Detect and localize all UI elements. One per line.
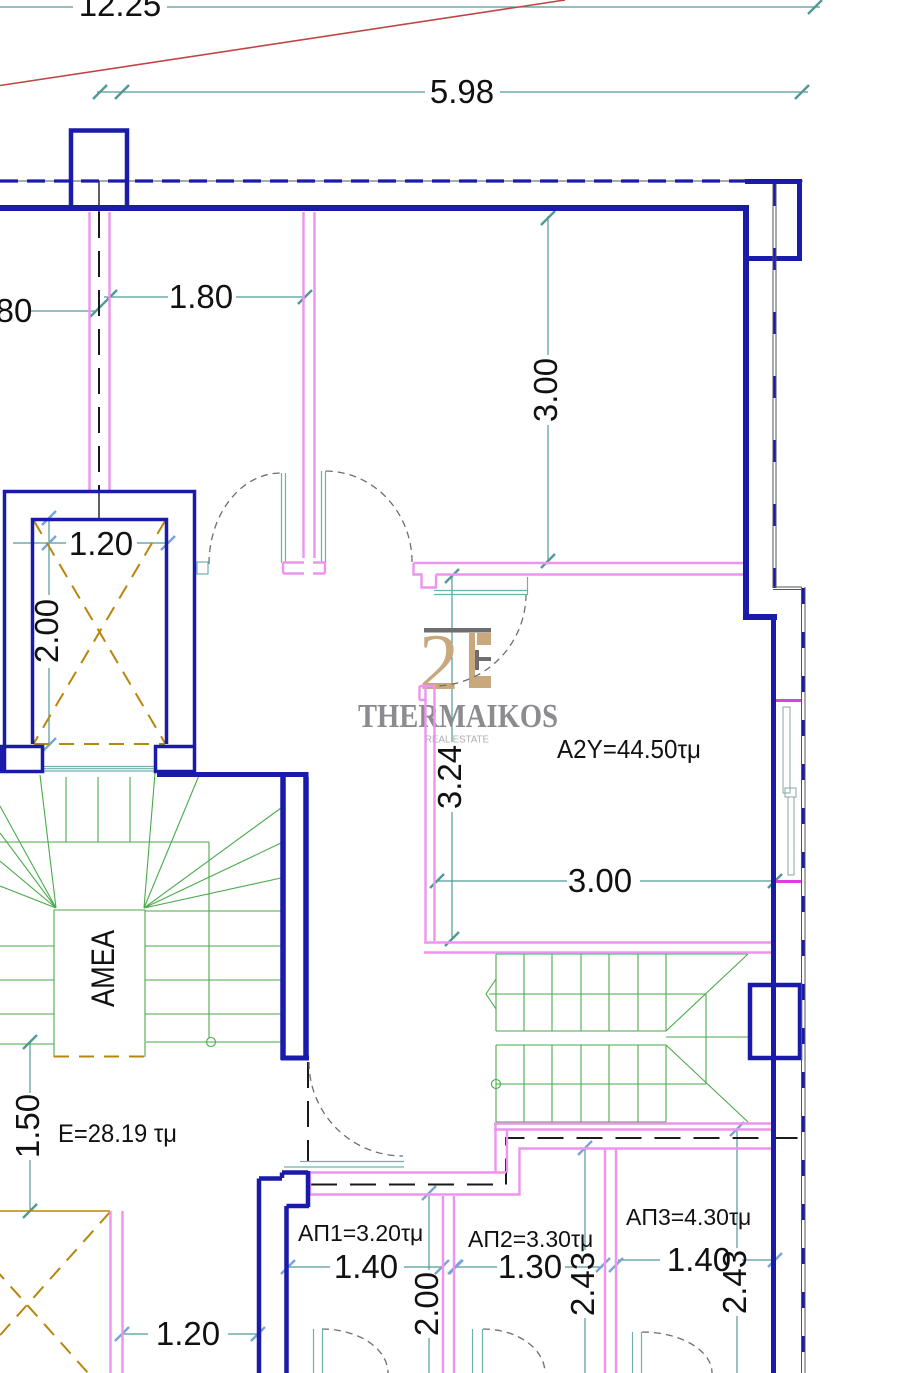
svg-text:ΑΠ1=3.20τμ: ΑΠ1=3.20τμ <box>298 1220 423 1246</box>
svg-text:2.43: 2.43 <box>564 1252 601 1316</box>
svg-text:1.20: 1.20 <box>69 525 133 562</box>
svg-text:ΑΜΕΑ: ΑΜΕΑ <box>85 929 121 1007</box>
svg-text:2.00: 2.00 <box>408 1272 445 1336</box>
svg-text:ΑΠ2=3.30τμ: ΑΠ2=3.30τμ <box>468 1226 593 1252</box>
svg-text:2.43: 2.43 <box>716 1250 753 1314</box>
svg-text:A2Y=44.50τμ: A2Y=44.50τμ <box>557 734 701 764</box>
svg-text:12.25: 12.25 <box>79 0 162 23</box>
svg-text:THERMAIKOS: THERMAIKOS <box>358 698 558 735</box>
svg-text:3.00: 3.00 <box>527 358 564 422</box>
svg-text:1.50: 1.50 <box>9 1094 46 1158</box>
svg-text:1.20: 1.20 <box>156 1315 220 1352</box>
svg-text:E=28.19 τμ: E=28.19 τμ <box>58 1120 177 1148</box>
svg-text:3.24: 3.24 <box>431 745 468 809</box>
svg-text:1.30: 1.30 <box>498 1248 562 1285</box>
svg-text:1.80: 1.80 <box>169 278 233 315</box>
svg-text:3.00: 3.00 <box>568 862 632 899</box>
svg-text:80: 80 <box>0 292 32 329</box>
svg-text:5.98: 5.98 <box>430 73 494 110</box>
svg-text:1.40: 1.40 <box>334 1248 398 1285</box>
svg-text:ΑΠ3=4.30τμ: ΑΠ3=4.30τμ <box>626 1204 751 1230</box>
